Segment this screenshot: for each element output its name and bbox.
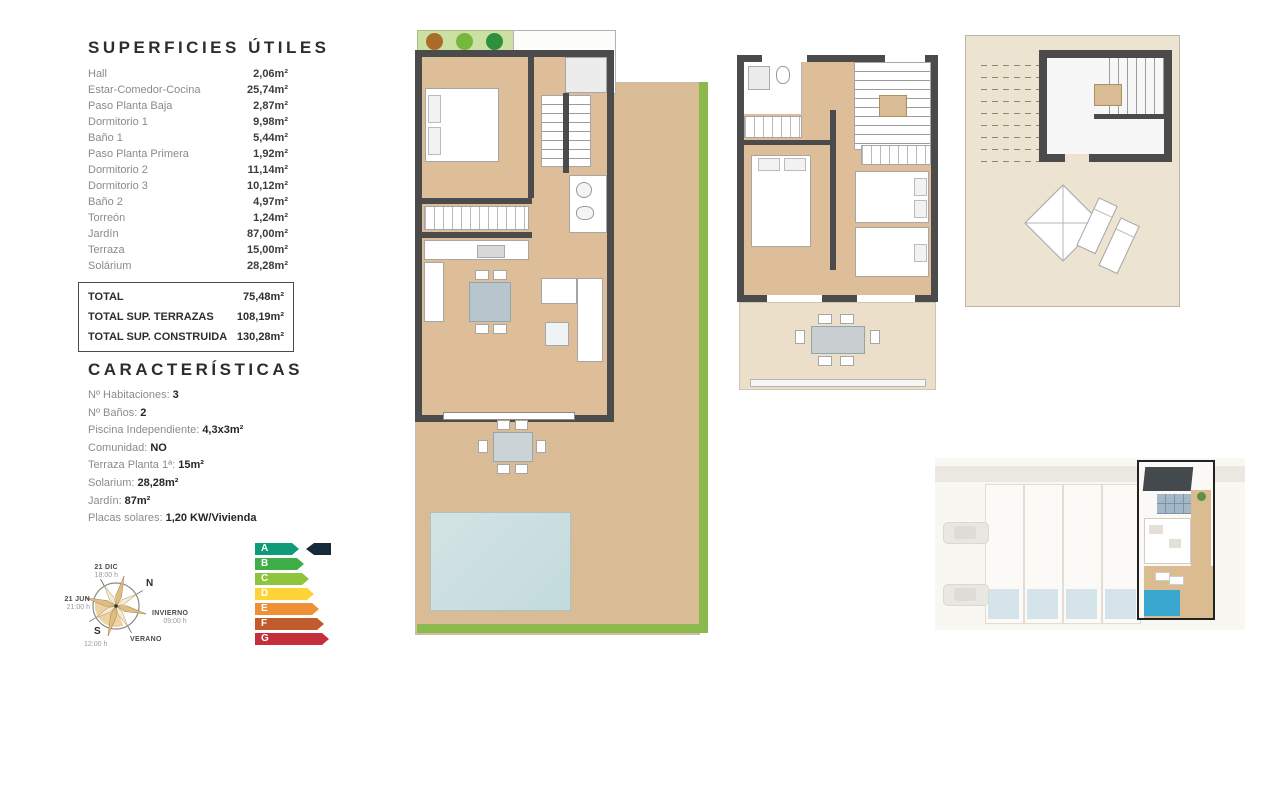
coffee-table [545, 322, 569, 346]
surface-row: Torreón1,24m² [88, 210, 288, 226]
wall [1094, 114, 1164, 119]
staircase [854, 62, 931, 150]
lounger-icon [1169, 576, 1184, 585]
compass-dec-label: 21 DIC 18:00 h [80, 564, 118, 580]
characteristic-row: Jardín:87m² [88, 495, 308, 513]
site-faded-units [935, 458, 1135, 630]
total-row: TOTAL SUP. TERRAZAS108,19m² [88, 311, 284, 323]
jun-time: 21:00 h [54, 604, 90, 612]
characteristic-row: Nº Baños:2 [88, 407, 308, 425]
characteristic-value: 3 [173, 389, 179, 401]
sliding-door-window [443, 412, 575, 420]
outdoor-dining-table [493, 432, 533, 462]
characteristic-label: Terraza Planta 1ª: [88, 459, 175, 471]
energy-letter: D [261, 588, 268, 599]
first-floor-terrace [739, 302, 936, 390]
unit-rooms [1144, 518, 1191, 564]
bathroom-2 [744, 62, 802, 114]
characteristic-value: 4,3x3m² [202, 424, 243, 436]
surface-row: Dormitorio 211,14m² [88, 162, 288, 178]
chair [475, 270, 489, 280]
chair [515, 420, 528, 430]
site-unit-pool [1066, 589, 1097, 619]
surface-label: Estar-Comedor-Cocina [88, 84, 200, 96]
hob [477, 245, 505, 258]
furniture-mark [1169, 539, 1181, 548]
energy-label: A B C D E F G [255, 543, 355, 648]
surface-row: Dormitorio 19,98m² [88, 114, 288, 130]
energy-rating-a: A [255, 543, 299, 555]
surface-label: Paso Planta Baja [88, 100, 172, 112]
car-roof [954, 588, 976, 601]
surface-label: Torreón [88, 212, 125, 224]
total-label: TOTAL SUP. TERRAZAS [88, 311, 214, 323]
unit-roof [1143, 467, 1194, 491]
characteristics-list: Nº Habitaciones:3 Nº Baños:2 Piscina Ind… [88, 389, 308, 530]
solar-panels [1157, 494, 1191, 514]
wall [528, 57, 534, 198]
site-unit-pool [1105, 589, 1136, 619]
surface-row: Hall2,06m² [88, 66, 288, 82]
chair [497, 420, 510, 430]
energy-rating-e: E [255, 603, 319, 615]
chair [818, 314, 832, 324]
ground-building [415, 50, 614, 422]
floor-plan-first [737, 55, 938, 392]
stair-landing [1094, 84, 1122, 106]
characteristics-title: CARACTERÍSTICAS [88, 360, 303, 380]
surface-value: 1,92m² [253, 148, 288, 160]
grass-strip-right [699, 82, 708, 633]
energy-rating-d: D [255, 588, 314, 600]
winter-word: INVIERNO [152, 610, 198, 618]
site-unit [1063, 484, 1102, 624]
total-value: 75,48m² [243, 291, 284, 303]
surface-label: Dormitorio 2 [88, 164, 148, 176]
energy-letter: G [261, 633, 269, 644]
wall [830, 110, 836, 270]
total-value: 108,19m² [237, 311, 284, 323]
energy-letter: E [261, 603, 268, 614]
surfaces-table: Hall2,06m² Estar-Comedor-Cocina25,74m² P… [88, 66, 288, 274]
energy-rating-g: G [255, 633, 329, 645]
closet [861, 145, 931, 165]
unit-pool [1144, 590, 1180, 616]
characteristic-row: Solarium:28,28m² [88, 477, 308, 495]
closet [565, 57, 607, 93]
chair [536, 440, 546, 453]
energy-letter: F [261, 618, 267, 629]
bed-single [855, 227, 929, 277]
bed-double [751, 155, 811, 247]
plant-icon [456, 33, 473, 50]
surface-value: 87,00m² [247, 228, 288, 240]
pillow [914, 178, 927, 196]
characteristic-row: Placas solares:1,20 KW/Vivienda [88, 512, 308, 530]
surface-row: Solárium28,28m² [88, 258, 288, 274]
characteristic-label: Solarium: [88, 477, 134, 489]
grass-strip-bottom [417, 624, 708, 633]
surface-value: 1,24m² [253, 212, 288, 224]
pillow [784, 158, 806, 171]
pillow [758, 158, 780, 171]
chair [818, 356, 832, 366]
totals-box: TOTAL75,48m² TOTAL SUP. TERRAZAS108,19m²… [78, 282, 294, 352]
plant-icon [426, 33, 443, 50]
chair [840, 314, 854, 324]
total-label: TOTAL SUP. CONSTRUIDA [88, 331, 227, 343]
surface-label: Baño 1 [88, 132, 123, 144]
car-icon [943, 522, 989, 544]
wardrobe [424, 206, 529, 230]
compass-south-label: S [94, 626, 101, 637]
surface-value: 10,12m² [247, 180, 288, 192]
wall [744, 140, 830, 145]
window [762, 55, 807, 62]
characteristic-value: 2 [140, 407, 146, 419]
surface-value: 9,98m² [253, 116, 288, 128]
surface-value: 4,97m² [253, 196, 288, 208]
toilet-icon [576, 206, 594, 220]
plant-icon [486, 33, 503, 50]
pergola-slats [976, 54, 1040, 164]
compass-winter-label: INVIERNO 09:00 h [152, 610, 198, 626]
surface-row: Estar-Comedor-Cocina25,74m² [88, 82, 288, 98]
surface-value: 11,14m² [248, 164, 288, 176]
surface-label: Hall [88, 68, 107, 80]
chair [840, 356, 854, 366]
chair [795, 330, 805, 344]
dec-time: 18:00 h [80, 572, 118, 580]
surface-row: Terraza15,00m² [88, 242, 288, 258]
total-label: TOTAL [88, 291, 124, 303]
characteristic-row: Terraza Planta 1ª:15m² [88, 459, 308, 477]
wall [563, 93, 569, 173]
pillow [914, 200, 927, 218]
total-value: 130,28m² [237, 331, 284, 343]
car-icon [943, 584, 989, 606]
characteristic-label: Jardín: [88, 495, 122, 507]
kitchen-counter-side [424, 262, 444, 322]
terrace-table [811, 326, 865, 354]
characteristic-label: Comunidad: [88, 442, 147, 454]
surface-value: 25,74m² [247, 84, 288, 96]
surface-value: 15,00m² [247, 244, 288, 256]
site-unit-pool [988, 589, 1019, 619]
chair [478, 440, 488, 453]
surface-label: Baño 2 [88, 196, 123, 208]
energy-rating-f: F [255, 618, 324, 630]
surface-label: Solárium [88, 260, 131, 272]
pillow [428, 127, 441, 155]
energy-rating-c: C [255, 573, 309, 585]
floor-plan-solarium [965, 35, 1180, 307]
chair [497, 464, 510, 474]
surface-label: Terraza [88, 244, 125, 256]
energy-letter: B [261, 558, 268, 569]
surface-label: Paso Planta Primera [88, 148, 189, 160]
characteristic-label: Placas solares: [88, 512, 163, 524]
chair [493, 324, 507, 334]
surface-row: Jardín87,00m² [88, 226, 288, 242]
site-unit-pool [1027, 589, 1058, 619]
surface-row: Dormitorio 310,12m² [88, 178, 288, 194]
characteristic-value: 1,20 KW/Vivienda [166, 512, 257, 524]
surface-value: 28,28m² [247, 260, 288, 272]
compass-summer-label: VERANO [130, 636, 162, 644]
characteristic-value: 28,28m² [137, 477, 178, 489]
surface-value: 2,87m² [253, 100, 288, 112]
characteristic-label: Nº Habitaciones: [88, 389, 170, 401]
surface-label: Dormitorio 3 [88, 180, 148, 192]
solarium-furniture [991, 166, 1161, 301]
characteristic-row: Nº Habitaciones:3 [88, 389, 308, 407]
stair-landing [879, 95, 907, 117]
characteristic-row: Piscina Independiente:4,3x3m² [88, 424, 308, 442]
site-highlighted-unit [1137, 460, 1215, 620]
compass-jun-label: 21 JUN 21:00 h [54, 596, 90, 612]
energy-letter: C [261, 573, 268, 584]
bathroom [569, 175, 607, 233]
wall [422, 198, 532, 204]
characteristic-value: NO [150, 442, 167, 454]
terrace-railing [750, 379, 926, 387]
pillow [914, 244, 927, 262]
characteristic-value: 87m² [125, 495, 151, 507]
bed-double [425, 88, 499, 162]
washer-icon [576, 182, 592, 198]
surfaces-title: SUPERFICIES ÚTILES [88, 38, 330, 58]
chair [515, 464, 528, 474]
site-unit [1102, 484, 1141, 624]
total-row: TOTAL75,48m² [88, 291, 284, 303]
dining-table [469, 282, 511, 322]
chair [870, 330, 880, 344]
window [857, 295, 915, 302]
bed-double [855, 171, 929, 223]
compass-south-time: 12:00 h [84, 641, 107, 649]
sofa-arm [541, 278, 577, 304]
pillow [428, 95, 441, 123]
characteristic-label: Piscina Independiente: [88, 424, 199, 436]
characteristic-value: 15m² [178, 459, 204, 471]
chair [493, 270, 507, 280]
toilet-icon [776, 66, 790, 84]
window [767, 295, 822, 302]
characteristic-label: Nº Baños: [88, 407, 137, 419]
window [885, 55, 925, 62]
chair [475, 324, 489, 334]
surface-label: Dormitorio 1 [88, 116, 148, 128]
energy-rating-b: B [255, 558, 304, 570]
floor-plan-ground [415, 30, 708, 654]
site-unit [1024, 484, 1063, 624]
surface-value: 2,06m² [253, 68, 288, 80]
compass-north-label: N [146, 578, 153, 589]
shower-icon [748, 66, 770, 90]
lounger-icon [1155, 572, 1170, 581]
surface-row: Paso Planta Baja2,87m² [88, 98, 288, 114]
site-unit [985, 484, 1024, 624]
surface-value: 5,44m² [253, 132, 288, 144]
jun-date: 21 JUN [54, 596, 90, 604]
surface-label: Jardín [88, 228, 119, 240]
tower-torreon [1039, 50, 1172, 162]
wall [422, 232, 532, 238]
swimming-pool [430, 512, 571, 611]
car-roof [954, 526, 976, 539]
first-building [737, 55, 938, 302]
door-opening [1065, 154, 1089, 162]
surface-row: Paso Planta Primera1,92m² [88, 146, 288, 162]
furniture-mark [1149, 525, 1163, 534]
site-plan [935, 458, 1245, 630]
characteristic-row: Comunidad:NO [88, 442, 308, 460]
dec-date: 21 DIC [80, 564, 118, 572]
closet [744, 116, 802, 138]
total-row: TOTAL SUP. CONSTRUIDA130,28m² [88, 331, 284, 343]
winter-time: 09:00 h [152, 618, 198, 626]
kitchen-counter [424, 240, 529, 260]
energy-letter: A [261, 543, 268, 554]
surface-row: Baño 15,44m² [88, 130, 288, 146]
tree-icon [1197, 492, 1206, 501]
surface-row: Baño 24,97m² [88, 194, 288, 210]
sofa [577, 278, 603, 362]
